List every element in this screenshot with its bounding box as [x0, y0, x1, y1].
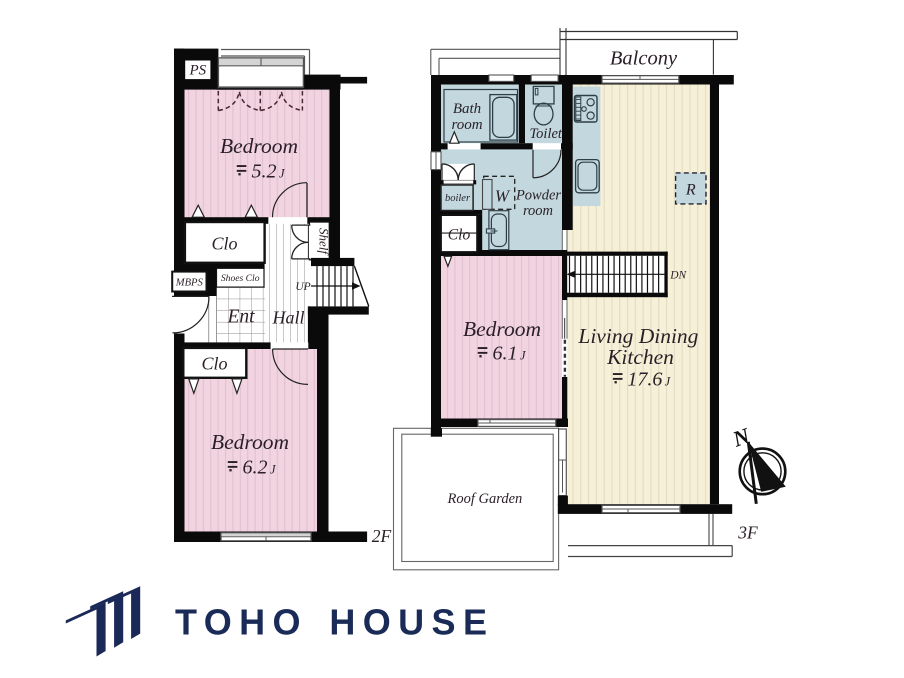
svg-text:Ent: Ent: [226, 307, 255, 328]
svg-text:6.1: 6.1: [493, 343, 518, 365]
svg-text:2F: 2F: [372, 526, 392, 546]
svg-text:Bedroom: Bedroom: [220, 134, 298, 158]
svg-text:Hall: Hall: [271, 308, 304, 328]
svg-text:Kitchen: Kitchen: [606, 345, 674, 369]
svg-text:Bedroom: Bedroom: [211, 430, 289, 454]
svg-text:17.6: 17.6: [627, 369, 662, 391]
svg-text:Clo: Clo: [201, 354, 227, 374]
svg-text:Clo: Clo: [211, 234, 237, 254]
svg-text:Shoes Clo: Shoes Clo: [221, 273, 260, 284]
svg-text:Balcony: Balcony: [610, 48, 678, 70]
svg-text:J: J: [665, 375, 671, 389]
svg-text:MBPS: MBPS: [175, 278, 204, 289]
svg-text:Powder: Powder: [515, 188, 561, 204]
svg-text:5.2: 5.2: [252, 161, 277, 183]
svg-text:Roof Garden: Roof Garden: [447, 491, 523, 507]
svg-text:room: room: [523, 203, 553, 219]
svg-text:UP: UP: [295, 281, 310, 293]
svg-text:Clo: Clo: [448, 227, 471, 244]
svg-text:room: room: [451, 117, 482, 133]
svg-text:J: J: [279, 167, 285, 181]
svg-text:6.2: 6.2: [243, 457, 268, 479]
svg-text:Toilet: Toilet: [529, 126, 562, 142]
svg-text:J: J: [270, 463, 276, 477]
svg-text:PS: PS: [188, 63, 206, 79]
svg-text:Shelf: Shelf: [317, 228, 332, 256]
svg-text:Bedroom: Bedroom: [463, 317, 541, 341]
svg-text:R: R: [685, 182, 696, 199]
svg-text:3F: 3F: [737, 523, 758, 543]
svg-text:boiler: boiler: [445, 193, 471, 204]
svg-text:DN: DN: [669, 270, 687, 282]
svg-text:J: J: [520, 349, 526, 363]
svg-text:Bath: Bath: [453, 101, 481, 117]
svg-text:TOHO HOUSE: TOHO HOUSE: [175, 602, 494, 643]
svg-text:W: W: [495, 187, 511, 206]
